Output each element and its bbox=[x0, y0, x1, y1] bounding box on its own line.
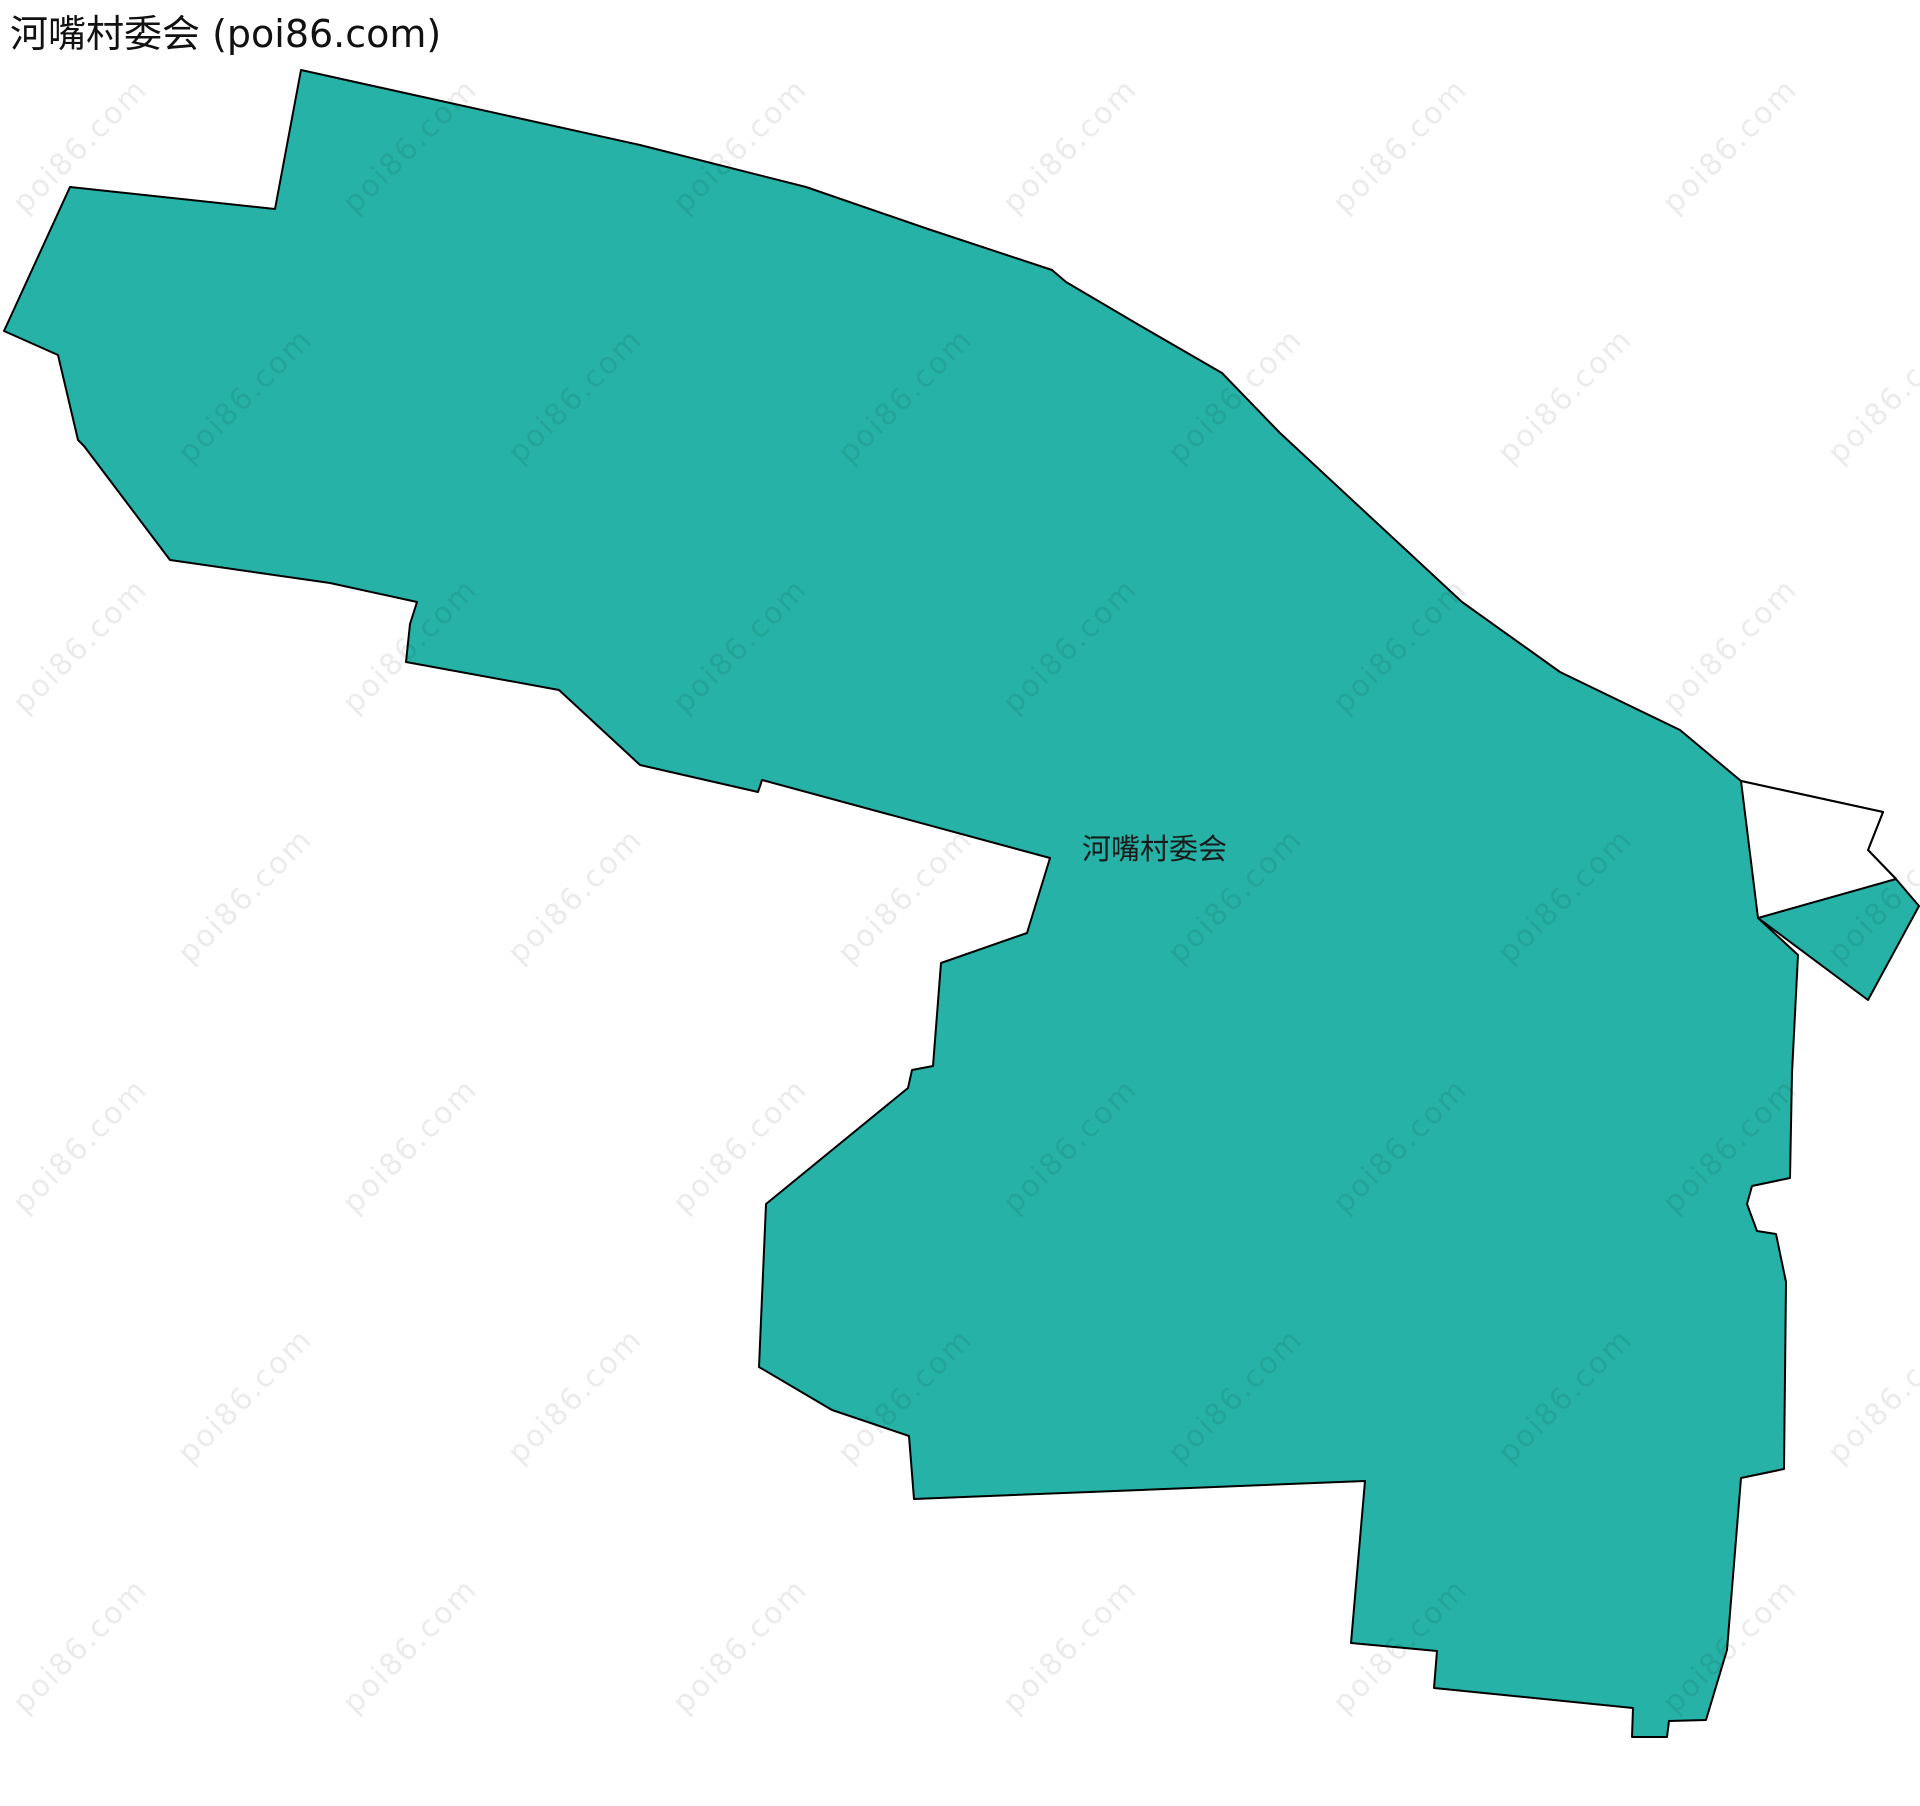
page-title: 河嘴村委会 (poi86.com) bbox=[10, 12, 441, 56]
watermark-overlay bbox=[0, 0, 1920, 1806]
map-canvas: poi86.com poi86.com 河嘴村委会 (poi86.com) 河嘴… bbox=[0, 0, 1920, 1806]
region-label: 河嘴村委会 bbox=[1082, 832, 1227, 866]
map-page: poi86.com poi86.com 河嘴村委会 (poi86.com) 河嘴… bbox=[0, 0, 1920, 1806]
